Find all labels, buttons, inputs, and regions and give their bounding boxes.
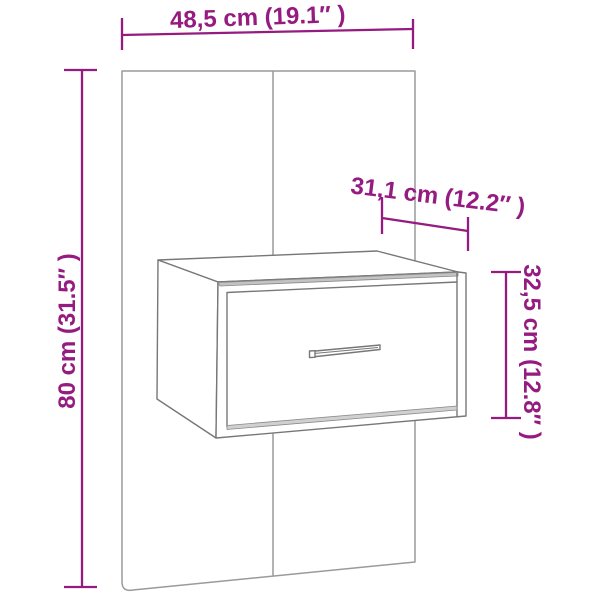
dimension-diagram: 48,5 cm (19.1″ ) 80 cm (31.5″ ) 31,1 cm … xyxy=(0,0,600,600)
dim-cabinet-height-label: 32,5 cm (12.8″ ) xyxy=(518,264,545,440)
cabinet-front-face xyxy=(216,272,466,438)
diagram-canvas: 48,5 cm (19.1″ ) 80 cm (31.5″ ) 31,1 cm … xyxy=(0,0,600,600)
dim-width-label: 48,5 cm (19.1″ ) xyxy=(170,1,346,34)
dim-total-height-label: 80 cm (31.5″ ) xyxy=(54,253,81,409)
drawer-handle-end-cap xyxy=(310,351,316,358)
cabinet xyxy=(157,251,466,438)
dim-cabinet-height xyxy=(491,272,521,418)
